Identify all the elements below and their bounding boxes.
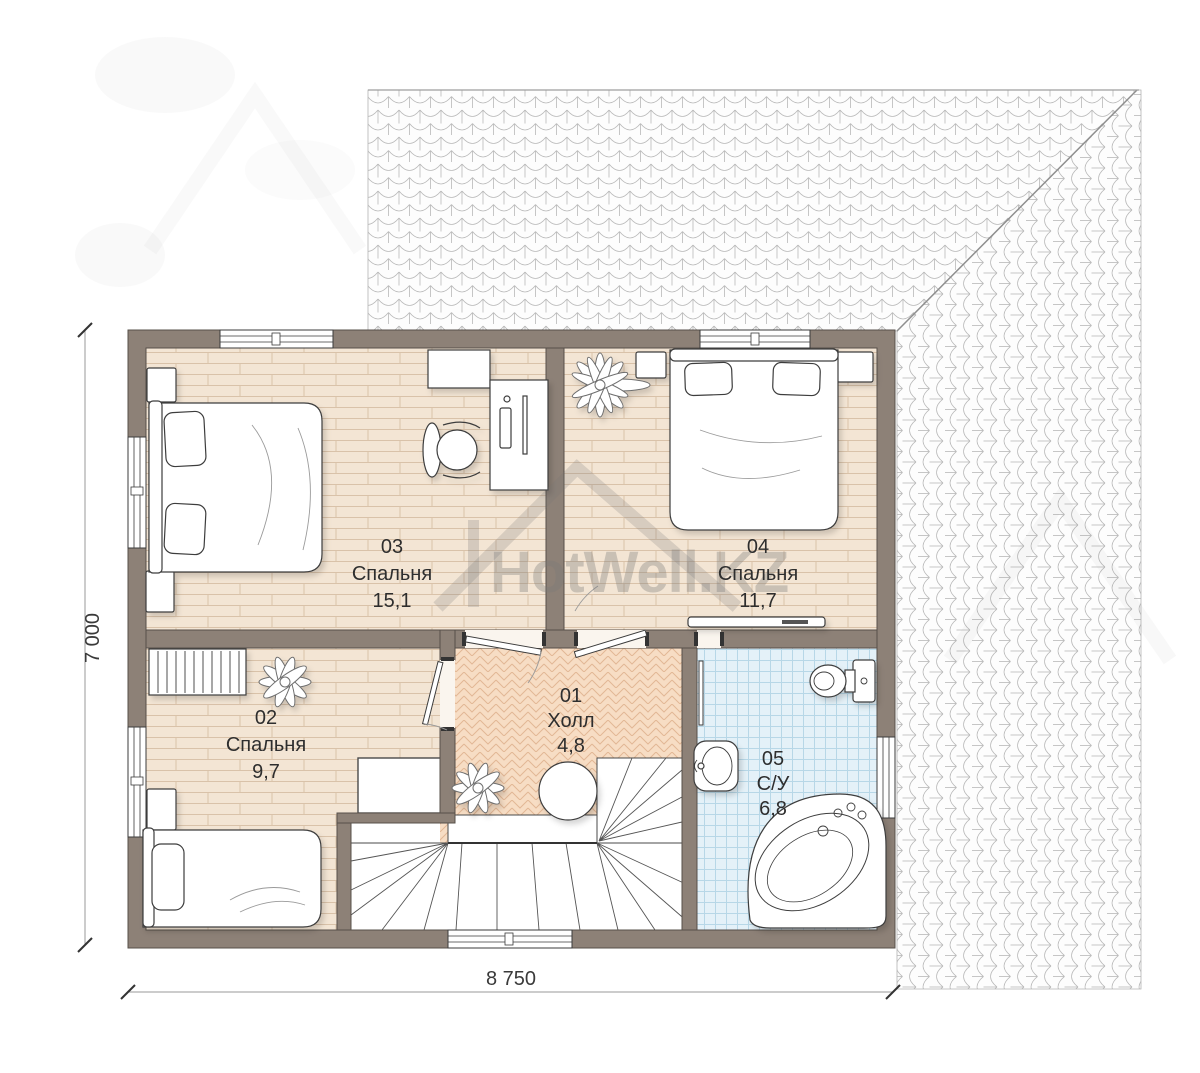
wall-room02-stairs-vert bbox=[337, 823, 351, 930]
window-room04-top bbox=[700, 330, 810, 348]
office-chair-seat bbox=[437, 430, 477, 470]
room-number: 01 bbox=[560, 685, 582, 707]
room-name: Спальня bbox=[226, 734, 306, 756]
room-number: 04 bbox=[747, 536, 769, 558]
hall-furniture bbox=[539, 762, 597, 820]
nightstand bbox=[147, 789, 176, 830]
dimension-width-label: 8 750 bbox=[486, 968, 536, 990]
room-name: Спальня bbox=[718, 563, 798, 585]
stairs-lower-flight bbox=[351, 843, 688, 930]
nightstand bbox=[636, 352, 666, 378]
window-stairs-bottom bbox=[448, 930, 572, 948]
room-number: 03 bbox=[381, 536, 403, 558]
radiator bbox=[149, 649, 246, 695]
desk-cabinet bbox=[428, 350, 490, 388]
room-name: Холл bbox=[547, 710, 594, 732]
round-table bbox=[539, 762, 597, 820]
window-room02-left bbox=[128, 727, 146, 837]
window-bathroom-right bbox=[877, 737, 895, 818]
room-area: 4,8 bbox=[557, 735, 585, 757]
wall-bathroom-left bbox=[682, 648, 697, 930]
wall-room02-right-upper bbox=[440, 630, 455, 660]
room-number: 05 bbox=[762, 748, 784, 770]
room-name: С/У bbox=[757, 773, 790, 795]
door-leaf-bathroom bbox=[699, 661, 703, 725]
doorway-bathroom bbox=[697, 630, 721, 648]
window-room03-top bbox=[220, 330, 333, 348]
doorway-room02 bbox=[440, 660, 455, 728]
floor-plan-page: HotWell.KZ 03 Спальня 15,1 04 Спальня 11… bbox=[0, 0, 1200, 1073]
mouse bbox=[504, 396, 510, 402]
nightstand bbox=[146, 571, 174, 612]
pillow bbox=[772, 362, 820, 396]
dimension-height: 7 000 bbox=[78, 323, 104, 952]
keyboard bbox=[500, 408, 511, 448]
shelf-books bbox=[782, 620, 808, 624]
floor-plan-drawing: HotWell.KZ 03 Спальня 15,1 04 Спальня 11… bbox=[0, 0, 1200, 1073]
dimension-height-label: 7 000 bbox=[82, 613, 104, 663]
bed-headboard bbox=[149, 401, 162, 573]
watermark-house-wall bbox=[468, 520, 479, 607]
wall-room02-right-lower bbox=[440, 728, 455, 813]
window-room03-left bbox=[128, 437, 146, 548]
monitor bbox=[523, 396, 527, 454]
pillow bbox=[164, 503, 207, 555]
hall-wardrobe bbox=[358, 758, 448, 813]
bed-headboard bbox=[670, 349, 838, 361]
nightstand bbox=[147, 368, 176, 402]
stairs-upper-flight bbox=[597, 758, 682, 843]
nightstand bbox=[837, 352, 873, 382]
pillow bbox=[164, 411, 207, 467]
pillow bbox=[152, 844, 184, 910]
room-area: 9,7 bbox=[252, 761, 280, 783]
sink bbox=[694, 741, 738, 791]
room-name: Спальня bbox=[352, 563, 432, 585]
room-area: 6,8 bbox=[759, 798, 787, 820]
desk bbox=[490, 380, 548, 490]
wall-room02-stairs-jog bbox=[337, 813, 455, 823]
room-area: 11,7 bbox=[739, 590, 776, 612]
room-area: 15,1 bbox=[373, 590, 412, 612]
pillow bbox=[684, 362, 732, 396]
room-number: 02 bbox=[255, 707, 277, 729]
dimension-width: 8 750 bbox=[121, 968, 900, 999]
